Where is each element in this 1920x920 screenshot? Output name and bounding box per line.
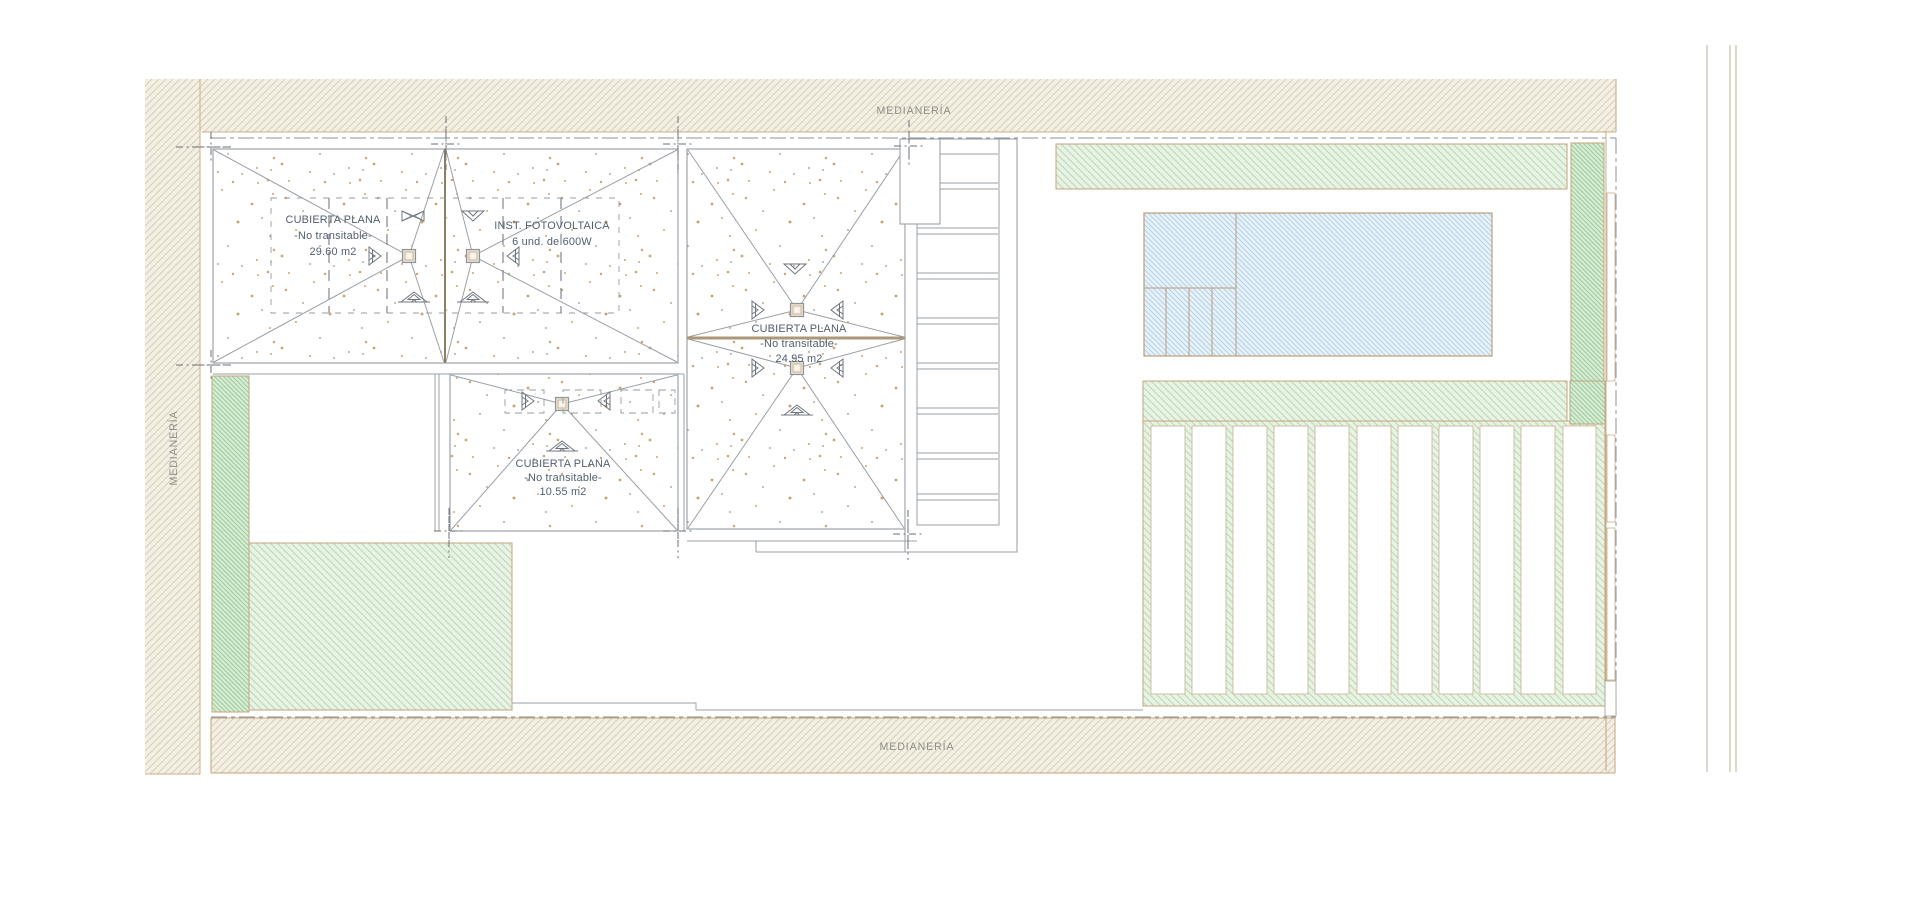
svg-text:-No transitable-: -No transitable- xyxy=(524,472,602,484)
svg-text:6 und. de 600W: 6 und. de 600W xyxy=(512,236,592,248)
svg-text:24.95 m2: 24.95 m2 xyxy=(775,353,822,365)
svg-text:MEDIANERÍA: MEDIANERÍA xyxy=(880,740,955,753)
svg-text:MEDIANERÍA: MEDIANERÍA xyxy=(877,104,952,117)
svg-text:MEDIANERÍA: MEDIANERÍA xyxy=(167,411,180,486)
svg-text:-No transitable-: -No transitable- xyxy=(760,338,838,350)
svg-text:29.60 m2: 29.60 m2 xyxy=(309,246,356,258)
svg-text:CUBIERTA PLANA: CUBIERTA PLANA xyxy=(516,458,612,470)
svg-text:-No transitable-: -No transitable- xyxy=(294,230,372,242)
svg-text:CUBIERTA PLANA: CUBIERTA PLANA xyxy=(752,323,848,335)
svg-text:INST. FOTOVOLTAICA: INST. FOTOVOLTAICA xyxy=(494,220,610,232)
svg-text:10.55 m2: 10.55 m2 xyxy=(539,486,586,498)
svg-text:CUBIERTA PLANA: CUBIERTA PLANA xyxy=(286,214,382,226)
